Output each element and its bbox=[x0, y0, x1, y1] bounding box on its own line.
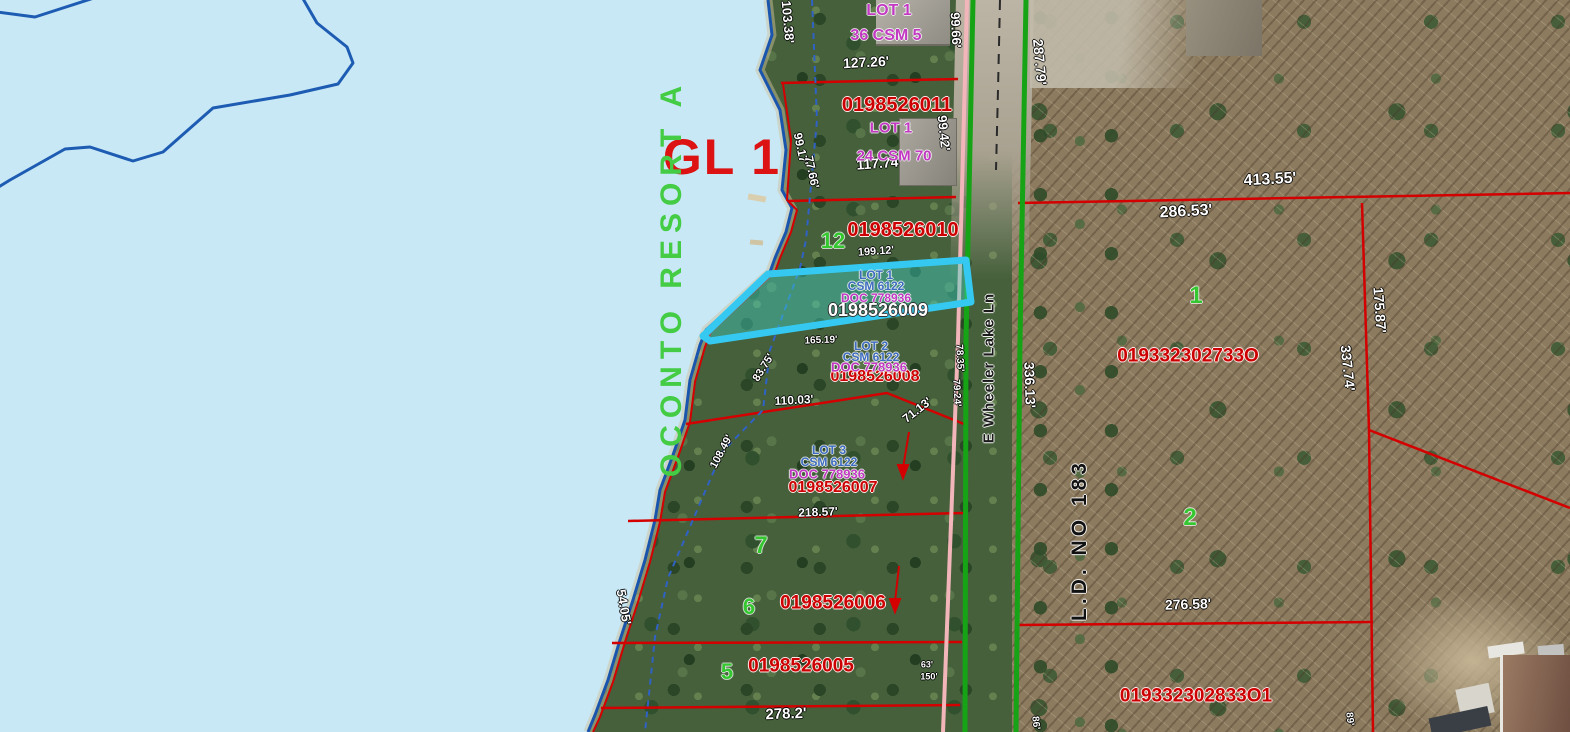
dim-77-66: 77.66' bbox=[803, 155, 822, 190]
road-name-label: E Wheeler Lake Ln bbox=[981, 293, 998, 443]
dim-79-24: 79.24' bbox=[950, 379, 961, 407]
dim-286-53: 286.53' bbox=[1159, 203, 1213, 222]
lot3-doc-label: DOC 778936 bbox=[789, 468, 865, 481]
map-labels: GL 1 OCONTO RESORT A E Wheeler Lake Ln L… bbox=[0, 0, 1570, 732]
selected-doc-label: DOC 778936 bbox=[841, 292, 911, 304]
dim-337-74: 337.74' bbox=[1339, 344, 1358, 391]
parcel-id-0198526010: 0198526010 bbox=[847, 220, 958, 240]
lot-number-1: 1 bbox=[1189, 284, 1202, 308]
dim-108-49: 108.49' bbox=[709, 433, 736, 470]
dim-278-2: 278.2' bbox=[765, 706, 807, 722]
lot-number-6: 6 bbox=[743, 596, 755, 618]
dim-276-58: 276.58' bbox=[1165, 596, 1212, 612]
dim-99-42: 99.42' bbox=[936, 115, 953, 152]
lot1-csm5-lot: LOT 1 bbox=[866, 3, 911, 19]
parcel-id-0198526006: 0198526006 bbox=[780, 594, 886, 613]
lot1-csm70-lot: LOT 1 bbox=[870, 121, 913, 136]
dim-54-05: 54.05' bbox=[615, 588, 634, 625]
parcel-id-019332302733O: 019332302733O bbox=[1117, 347, 1259, 366]
dim-287-79: 287.79' bbox=[1031, 38, 1049, 85]
lot-number-7: 7 bbox=[754, 534, 767, 558]
dim-99-66: 99.66' bbox=[949, 12, 964, 48]
dim-150: 150' bbox=[920, 673, 937, 682]
lot-number-12: 12 bbox=[821, 230, 845, 252]
parcel-id-0198526005: 0198526005 bbox=[748, 657, 854, 676]
lot2-doc-label: DOC 778936 bbox=[831, 361, 907, 374]
land-division-label: L.D. NO 183 bbox=[1068, 459, 1092, 621]
lot1-csm5: 36 CSM 5 bbox=[850, 28, 921, 44]
dim-110-03: 110.03' bbox=[774, 393, 813, 407]
lot-number-5: 5 bbox=[721, 661, 733, 683]
lot1-csm70: 24 CSM 70 bbox=[856, 149, 931, 164]
parcel-id-0198526011: 0198526011 bbox=[842, 95, 952, 115]
dim-78-35: 78.35' bbox=[953, 344, 964, 372]
dim-103-38: 103.38' bbox=[780, 0, 797, 44]
dim-165-19: 165.19' bbox=[804, 335, 837, 346]
dim-71-13: 71.13' bbox=[900, 395, 933, 425]
dim-336-13: 336.13' bbox=[1022, 362, 1038, 409]
dim-127-26: 127.26' bbox=[843, 54, 890, 70]
dim-86: 86' bbox=[1029, 716, 1040, 730]
plat-name-label: OCONTO RESORT A bbox=[655, 79, 689, 477]
map-viewport[interactable]: GL 1 OCONTO RESORT A E Wheeler Lake Ln L… bbox=[0, 0, 1570, 732]
dim-175-87: 175.87' bbox=[1371, 286, 1388, 333]
dim-63: 63' bbox=[921, 661, 933, 670]
dim-89: 89' bbox=[1343, 712, 1354, 726]
dim-413-55: 413.55' bbox=[1243, 171, 1297, 190]
lot-number-2: 2 bbox=[1183, 506, 1196, 530]
parcel-id-0198526007: 0198526007 bbox=[789, 480, 878, 496]
parcel-id-019332302833O1: 019332302833O1 bbox=[1120, 687, 1272, 706]
dim-199-12: 199.12' bbox=[858, 245, 895, 259]
dim-218-57: 218.57' bbox=[798, 505, 838, 518]
dim-83-75: 83.75' bbox=[751, 352, 776, 383]
